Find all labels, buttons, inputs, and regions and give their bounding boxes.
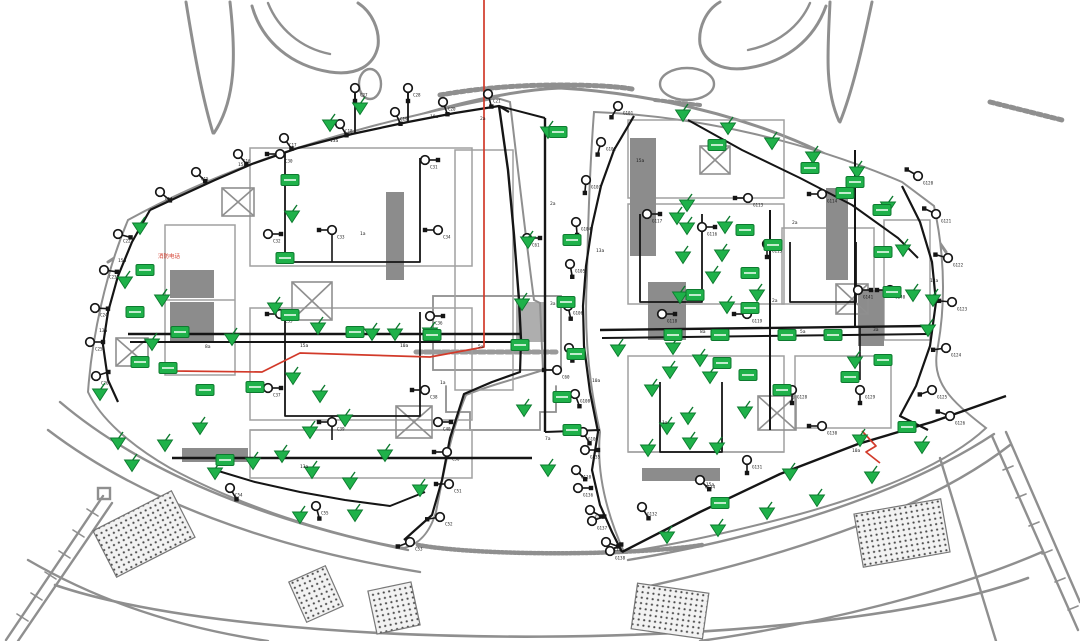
wire-label: 13a — [596, 248, 605, 254]
smoke-detector-icon — [264, 384, 273, 393]
junction-node-icon — [538, 236, 542, 240]
wire-label: 1a — [440, 380, 446, 386]
detector-label: G123 — [957, 307, 968, 312]
alarm-module — [739, 370, 757, 381]
wire-label: 13a — [930, 278, 939, 284]
smoke-detector-icon — [434, 418, 443, 427]
wire-label: 8a — [205, 344, 211, 350]
detector-label: C28 — [413, 93, 421, 98]
detector-label: G130 — [827, 431, 838, 436]
detector-label: G102 — [606, 147, 617, 152]
wire-label: 10a — [430, 114, 439, 120]
junction-node-icon — [807, 192, 811, 196]
smoke-detector-icon — [264, 230, 273, 239]
smoke-detector-icon — [421, 386, 430, 395]
smoke-detector-icon — [312, 502, 321, 511]
alarm-module — [171, 327, 189, 338]
smoke-detector-icon — [553, 366, 562, 375]
alarm-module — [874, 247, 892, 258]
smoke-detector-icon — [818, 422, 827, 431]
junction-node-icon — [673, 312, 677, 316]
ramp-left — [6, 496, 112, 641]
detector-label: G109 — [588, 437, 599, 442]
alarm-module — [246, 382, 264, 393]
smoke-detector-icon — [581, 446, 590, 455]
alarm-module — [557, 297, 575, 308]
smoke-detector-icon — [948, 298, 957, 307]
wire-label: 10a — [852, 448, 861, 454]
smoke-detector-icon — [658, 310, 667, 319]
detector-label: C23 — [109, 275, 117, 280]
detector-label: C36 — [435, 321, 443, 326]
junction-node-icon — [489, 104, 493, 108]
smoke-detector-icon — [421, 156, 430, 165]
junction-node-icon — [569, 317, 573, 321]
smoke-detector: G136 — [574, 484, 594, 498]
detector-label: G120 — [923, 181, 934, 186]
alarm-module — [841, 372, 859, 383]
detector-label: G126 — [955, 421, 966, 426]
detector-label: C32 — [273, 239, 281, 244]
smoke-detector-icon — [91, 304, 100, 313]
wire-label: 3a — [550, 301, 556, 307]
junction-node-icon — [745, 471, 749, 475]
junction-node-icon — [587, 441, 591, 445]
junction-node-icon — [449, 420, 453, 424]
junction-node-icon — [875, 288, 879, 292]
wire-label: 3a — [873, 327, 879, 333]
smoke-detector-icon — [602, 538, 611, 547]
wire-label: 10a — [400, 343, 409, 349]
alarm-module — [778, 330, 796, 341]
smoke-detector-icon — [114, 230, 123, 239]
detector-label: C26 — [101, 381, 109, 386]
detector-label: G118 — [667, 319, 678, 324]
detector-label: G121 — [941, 219, 952, 224]
junction-node-icon — [602, 514, 606, 518]
detector-label: G124 — [951, 353, 962, 358]
junction-node-icon — [436, 158, 440, 162]
wire-label: 5a — [800, 329, 806, 335]
smoke-detector-icon — [436, 513, 445, 522]
smoke-detector-icon — [276, 150, 285, 159]
junction-node-icon — [542, 368, 546, 372]
alarm-module — [708, 140, 726, 151]
smoke-detector-icon — [391, 108, 400, 117]
detector-label: G138 — [615, 556, 626, 561]
smoke-detector-icon — [856, 386, 865, 395]
detector-label: C50 — [452, 457, 460, 462]
junction-node-icon — [790, 401, 794, 405]
left-horn-hook — [252, 3, 378, 73]
smoke-detector-icon — [946, 412, 955, 421]
detector-label: G128 — [797, 395, 808, 400]
detector-label: G141 — [863, 295, 874, 300]
smoke-detector-icon — [439, 98, 448, 107]
detector-label: G116 — [707, 232, 718, 237]
wire-label: 5a — [478, 344, 484, 350]
detector-label: G132 — [647, 512, 658, 517]
wire-label: 1a — [662, 420, 668, 426]
wire-label: 15a — [706, 482, 715, 488]
alarm-module — [741, 268, 759, 279]
detector-label: C40 — [443, 427, 451, 432]
junction-node-icon — [279, 386, 283, 390]
detector-label: G125 — [937, 395, 948, 400]
detector-label: C17 — [289, 143, 297, 148]
alarm-module — [281, 310, 299, 321]
floor-plan-page: C14C15C16C17C18C19C20C21C22C23C24C25C26C… — [0, 0, 1080, 641]
wire-label: 15a — [238, 162, 247, 168]
smoke-detector-icon — [914, 172, 923, 181]
alarm-module — [846, 177, 864, 188]
wire-label: 8a — [700, 329, 706, 335]
smoke-detector: C27 — [351, 84, 368, 104]
smoke-detector: G110 — [572, 466, 592, 482]
smoke-detector-icon — [614, 102, 623, 111]
junction-node-icon — [406, 99, 410, 103]
detector-label: G108 — [580, 399, 591, 404]
smoke-detector-icon — [434, 226, 443, 235]
detector-label: C34 — [443, 235, 451, 240]
smoke-detector: C15 — [192, 168, 209, 184]
detector-label: G105 — [575, 269, 586, 274]
wire-label: 1a — [360, 231, 366, 237]
wire-label: 15a — [300, 343, 309, 349]
smoke-detector-icon — [566, 260, 575, 269]
junction-node-icon — [410, 388, 414, 392]
ramp-left-cap — [98, 488, 110, 499]
detector-label: G117 — [652, 219, 663, 224]
smoke-detector-icon — [942, 344, 951, 353]
junction-node-icon — [619, 542, 623, 546]
smoke-detector-icon — [280, 134, 289, 143]
alarm-module — [713, 358, 731, 369]
junction-node-icon — [434, 482, 438, 486]
junction-node-icon — [807, 424, 811, 428]
alarm-module — [126, 307, 144, 318]
detector-label: G131 — [752, 465, 763, 470]
smoke-detector-icon — [86, 338, 95, 347]
junction-node-icon — [596, 448, 600, 452]
speaker-icon — [541, 465, 556, 477]
detector-label: C19 — [400, 117, 408, 122]
alarm-module — [567, 349, 585, 360]
alarm-module — [216, 455, 234, 466]
smoke-detector-icon — [234, 150, 243, 159]
junction-node-icon — [353, 99, 357, 103]
detector-label: C27 — [360, 93, 368, 98]
smoke-detector-icon — [443, 448, 452, 457]
smoke-detector-icon — [92, 372, 101, 381]
junction-node-icon — [445, 112, 449, 116]
detector-label: C22 — [123, 239, 131, 244]
junction-node-icon — [234, 497, 238, 501]
alarm-module — [741, 303, 759, 314]
junction-node-icon — [265, 312, 269, 316]
wire-label: 2a — [550, 201, 556, 207]
junction-node-icon — [918, 392, 922, 396]
junction-node-icon — [115, 270, 119, 274]
smoke-detector-icon — [192, 168, 201, 177]
wire-label: 15a — [636, 158, 645, 164]
alarm-module — [553, 392, 571, 403]
left-horn-inner — [214, 2, 233, 133]
junction-node-icon — [317, 516, 321, 520]
smoke-detector-icon — [643, 210, 652, 219]
alarm-module — [346, 327, 364, 338]
detector-label: C39 — [337, 427, 345, 432]
smoke-detector: C14 — [156, 188, 173, 203]
junction-node-icon — [577, 404, 581, 408]
detector-label: G113 — [753, 203, 764, 208]
alarm-module — [686, 290, 704, 301]
alarm-module — [836, 188, 854, 199]
detector-label: G137 — [597, 526, 608, 531]
smoke-detector-icon — [574, 484, 583, 493]
smoke-detector-icon — [606, 547, 615, 556]
alarm-module — [736, 225, 754, 236]
smoke-detector-icon — [586, 506, 595, 515]
junction-node-icon — [441, 314, 445, 318]
junction-node-icon — [106, 306, 110, 310]
smoke-detector-icon — [156, 188, 165, 197]
smoke-detector-icon — [351, 84, 360, 93]
smoke-detector-icon — [928, 386, 937, 395]
alarm-module — [773, 385, 791, 396]
detector-label: C30 — [285, 159, 293, 164]
junction-node-icon — [432, 450, 436, 454]
junction-node-icon — [905, 167, 909, 171]
wire-label: 10a — [592, 378, 601, 384]
red-annotation-label: 消防电话 — [158, 252, 181, 260]
detector-label: C52 — [445, 522, 453, 527]
detector-label: C33 — [337, 235, 345, 240]
detector-label: C38 — [430, 395, 438, 400]
smoke-detector-icon — [696, 476, 705, 485]
alarm-module — [898, 422, 916, 433]
detector-label: C25 — [95, 347, 103, 352]
smoke-detector-icon — [944, 254, 953, 263]
detector-label: C51 — [454, 489, 462, 494]
smoke-detector-icon — [743, 456, 752, 465]
junction-node-icon — [396, 544, 400, 548]
detector-label: C20 — [448, 107, 456, 112]
alarm-module — [563, 425, 581, 436]
speaker-icon — [125, 460, 140, 472]
speaker-device — [323, 114, 338, 132]
detector-label: G110 — [581, 475, 592, 480]
junction-node-icon — [931, 348, 935, 352]
alarm-module — [136, 265, 154, 276]
smoke-detector: G135 — [581, 446, 601, 460]
junction-node-icon — [936, 409, 940, 413]
right-horn-inner — [828, 2, 839, 121]
wire-label: 13a — [99, 328, 108, 334]
speaker-device — [541, 459, 556, 477]
floor-plan-drawing: C14C15C16C17C18C19C20C21C22C23C24C25C26C… — [0, 0, 1080, 641]
smoke-detector-icon — [588, 517, 597, 526]
junction-node-icon — [317, 420, 321, 424]
detector-label: C21 — [493, 99, 501, 104]
junction-node-icon — [933, 252, 937, 256]
junction-node-icon — [732, 312, 736, 316]
junction-node-icon — [733, 196, 737, 200]
smoke-detector-icon — [818, 190, 827, 199]
speaker-device — [517, 399, 532, 417]
detector-label: G129 — [865, 395, 876, 400]
detector-label: G114 — [827, 199, 838, 204]
junction-node-icon — [423, 228, 427, 232]
junction-node-icon — [869, 288, 873, 292]
alarm-module — [281, 175, 299, 186]
detector-label: C14 — [165, 197, 173, 202]
detector-label: C53 — [415, 547, 423, 552]
detector-label: C37 — [273, 393, 281, 398]
smoke-detector-icon — [572, 466, 581, 475]
smoke-detector-icon — [406, 538, 415, 547]
alarm-module — [883, 287, 901, 298]
alarm-module — [131, 357, 149, 368]
wire-label: 7a — [545, 436, 551, 442]
alarm-module — [276, 253, 294, 264]
junction-node-icon — [101, 340, 105, 344]
alarm-module — [874, 355, 892, 366]
alarm-module — [159, 363, 177, 374]
smoke-detector-icon — [572, 218, 581, 227]
arc-scallops-right — [990, 102, 1062, 120]
detector-label: C24 — [100, 313, 108, 318]
smoke-detector-icon — [328, 418, 337, 427]
wire-label: 2a — [772, 298, 778, 304]
detector-label: C55 — [321, 511, 329, 516]
smoke-detector-icon — [638, 503, 647, 512]
junction-node-icon — [398, 122, 402, 126]
smoke-detector: C28 — [404, 84, 421, 104]
detector-label: C61 — [532, 243, 540, 248]
junction-node-icon — [609, 115, 613, 119]
alarm-module — [511, 340, 529, 351]
junction-node-icon — [589, 486, 593, 490]
smoke-detector-icon — [100, 266, 109, 275]
junction-node-icon — [265, 152, 269, 156]
smoke-detector-icon — [597, 138, 606, 147]
alarm-module — [873, 205, 891, 216]
alarm-module — [549, 127, 567, 138]
smoke-detector-icon — [571, 390, 580, 399]
smoke-detector-icon — [445, 480, 454, 489]
detector-label: G104 — [581, 227, 592, 232]
smoke-detector-icon — [226, 484, 235, 493]
detector-label: G101 — [623, 111, 634, 116]
junction-node-icon — [922, 206, 926, 210]
speaker-icon — [517, 405, 532, 417]
detector-label: C18 — [345, 129, 353, 134]
junction-node-icon — [317, 228, 321, 232]
junction-node-icon — [344, 133, 348, 137]
ramp-right — [940, 432, 1080, 641]
smoke-detector-icon — [328, 226, 337, 235]
junction-node-icon — [765, 255, 769, 259]
right-horn-end — [660, 68, 714, 100]
smoke-detector-icon — [744, 194, 753, 203]
detector-label: G122 — [953, 263, 964, 268]
wire-label: 13a — [330, 138, 339, 144]
detector-label: G119 — [752, 319, 763, 324]
junction-node-icon — [570, 275, 574, 279]
right-horn — [840, 2, 872, 122]
smoke-detector: G108 — [571, 390, 591, 409]
junction-node-icon — [583, 191, 587, 195]
smoke-detector-icon — [426, 312, 435, 321]
left-horn — [186, 2, 213, 133]
smoke-detector: G120 — [905, 167, 934, 185]
junction-node-icon — [658, 212, 662, 216]
junction-node-icon — [858, 401, 862, 405]
detector-label: G106 — [573, 311, 584, 316]
junction-node-icon — [713, 225, 717, 229]
junction-node-icon — [279, 232, 283, 236]
wire-label: 2a — [480, 116, 486, 122]
alarm-module — [563, 235, 581, 246]
smoke-detector-icon — [484, 90, 493, 99]
alarm-module — [824, 330, 842, 341]
detector-label: G103 — [591, 185, 602, 190]
smoke-detector: G105 — [566, 260, 586, 279]
detector-label: C15 — [201, 177, 209, 182]
smoke-detector-icon — [582, 176, 591, 185]
wire-label: 13a — [300, 464, 309, 470]
smoke-detector-icon — [932, 210, 941, 219]
alarm-module — [711, 330, 729, 341]
alarm-module — [764, 240, 782, 251]
alarm-module — [801, 163, 819, 174]
smoke-detector-icon — [404, 84, 413, 93]
junction-node-icon — [425, 517, 429, 521]
alarm-module — [196, 385, 214, 396]
detector-label: G135 — [590, 455, 601, 460]
detector-label: C60 — [562, 375, 570, 380]
wire-label: 15a — [118, 258, 127, 264]
smoke-detector-icon — [698, 223, 707, 232]
detector-label: C54 — [235, 493, 243, 498]
detector-label: C31 — [430, 165, 438, 170]
detector-label: G136 — [583, 493, 594, 498]
alarm-module — [423, 330, 441, 341]
junction-node-icon — [595, 152, 599, 156]
wire-label: 2a — [792, 220, 798, 226]
smoke-detector-icon — [854, 286, 863, 295]
junction-node-icon — [646, 516, 650, 520]
alarm-module — [711, 498, 729, 509]
right-horn-hook — [700, 2, 826, 69]
alarm-module — [664, 330, 682, 341]
junction-node-icon — [106, 370, 110, 374]
